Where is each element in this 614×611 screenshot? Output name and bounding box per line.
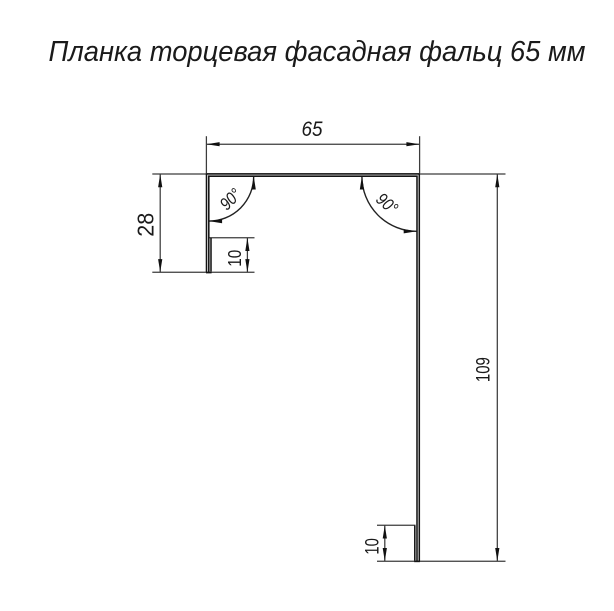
svg-text:28: 28 (133, 213, 159, 237)
svg-text:65: 65 (302, 117, 324, 141)
svg-text:10: 10 (224, 250, 245, 267)
svg-text:Планка торцевая фасадная фальц: Планка торцевая фасадная фальц 65 мм (49, 36, 586, 68)
svg-text:109: 109 (473, 357, 495, 382)
svg-text:10: 10 (362, 538, 384, 555)
